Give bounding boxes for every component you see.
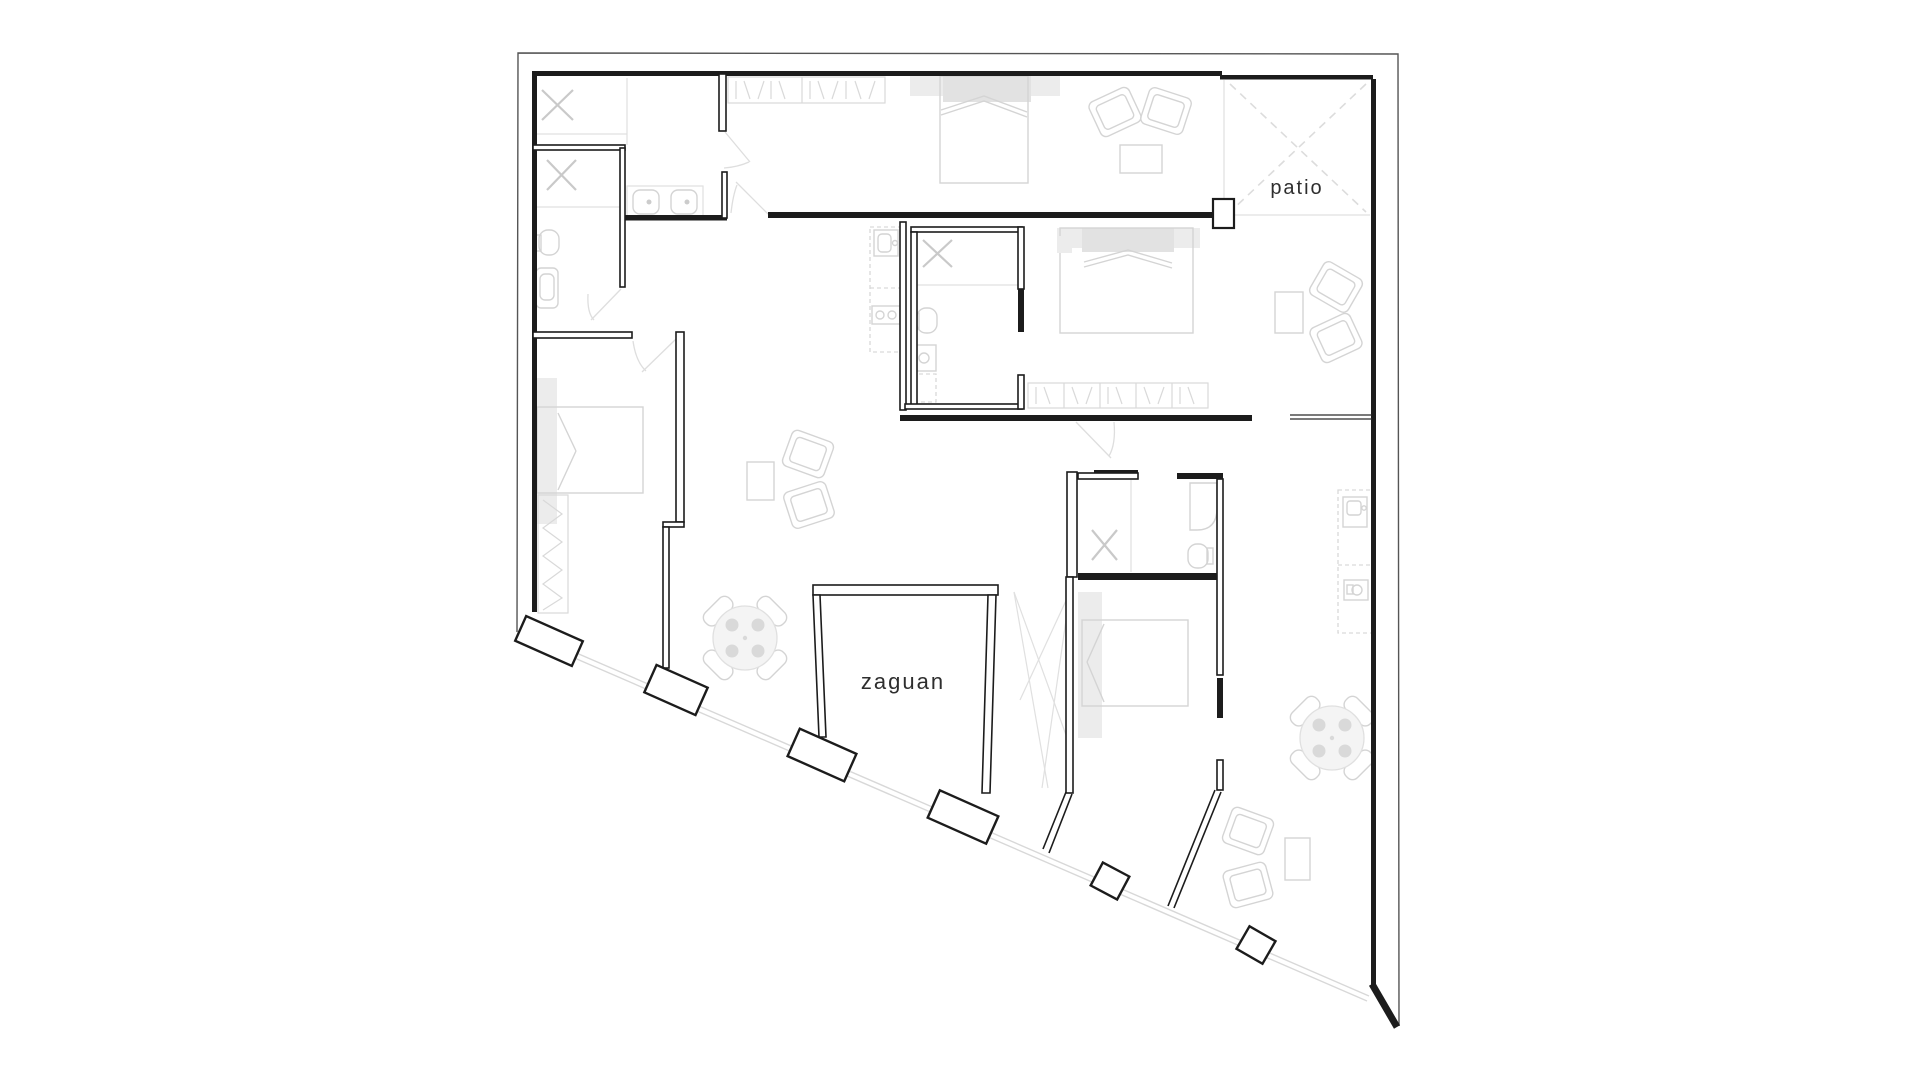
chairs-bottom-right (1221, 806, 1310, 909)
wardrobe-top (728, 77, 885, 103)
chairs-below-patio (1275, 260, 1365, 365)
outer-boundary (517, 53, 1399, 1026)
wardrobe-corridor (1028, 383, 1208, 408)
patio-label: patio (1270, 177, 1323, 199)
armchairs-left-living (747, 429, 836, 530)
bathroom-topleft-2 (534, 160, 621, 320)
floor-plan-drawing: patio zaguan (0, 0, 1920, 1080)
bed-lower-bedroom (1078, 592, 1188, 738)
floor-plan-page: patio zaguan (0, 0, 1920, 1080)
door-swings (633, 132, 1114, 458)
bathroom-near-zaguan (1092, 480, 1217, 572)
armchairs-top-right (1087, 85, 1193, 173)
furniture (533, 76, 1377, 909)
round-table-right (1287, 693, 1376, 782)
bathroom-topleft-1 (534, 78, 627, 145)
kitchen-counter-right (1338, 490, 1372, 633)
zaguan-label: zaguan (861, 669, 945, 694)
round-table-left (700, 593, 789, 682)
entry-ramp (1014, 592, 1070, 788)
bed-top-bedroom (910, 76, 1060, 183)
ensuite-bathroom (911, 240, 1018, 402)
bed-left-bedroom (533, 378, 643, 524)
kitchen-counter-center (870, 227, 902, 352)
vanity-double (627, 186, 703, 216)
bed-middle-bedroom (1057, 228, 1200, 333)
patio-door-jamb (1213, 199, 1234, 228)
